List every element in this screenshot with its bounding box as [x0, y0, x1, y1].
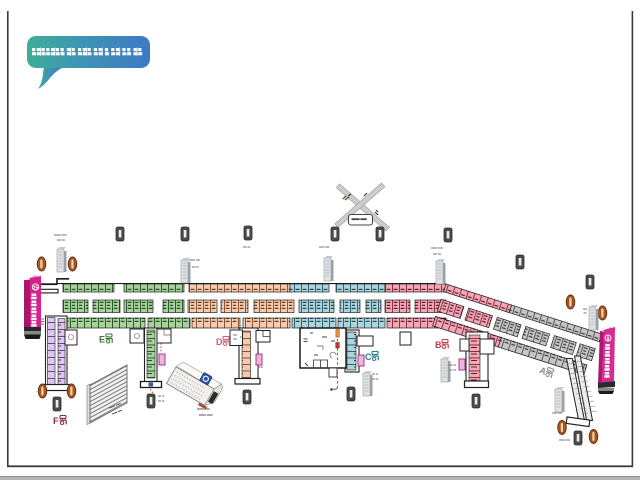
svg-text:E: E — [99, 335, 105, 345]
svg-text:C: C — [365, 352, 372, 362]
svg-text:B: B — [435, 340, 442, 350]
svg-text:25: 25 — [33, 286, 39, 292]
svg-text:8: 8 — [607, 337, 610, 343]
svg-text:D: D — [216, 337, 223, 347]
svg-text:F: F — [53, 416, 59, 426]
